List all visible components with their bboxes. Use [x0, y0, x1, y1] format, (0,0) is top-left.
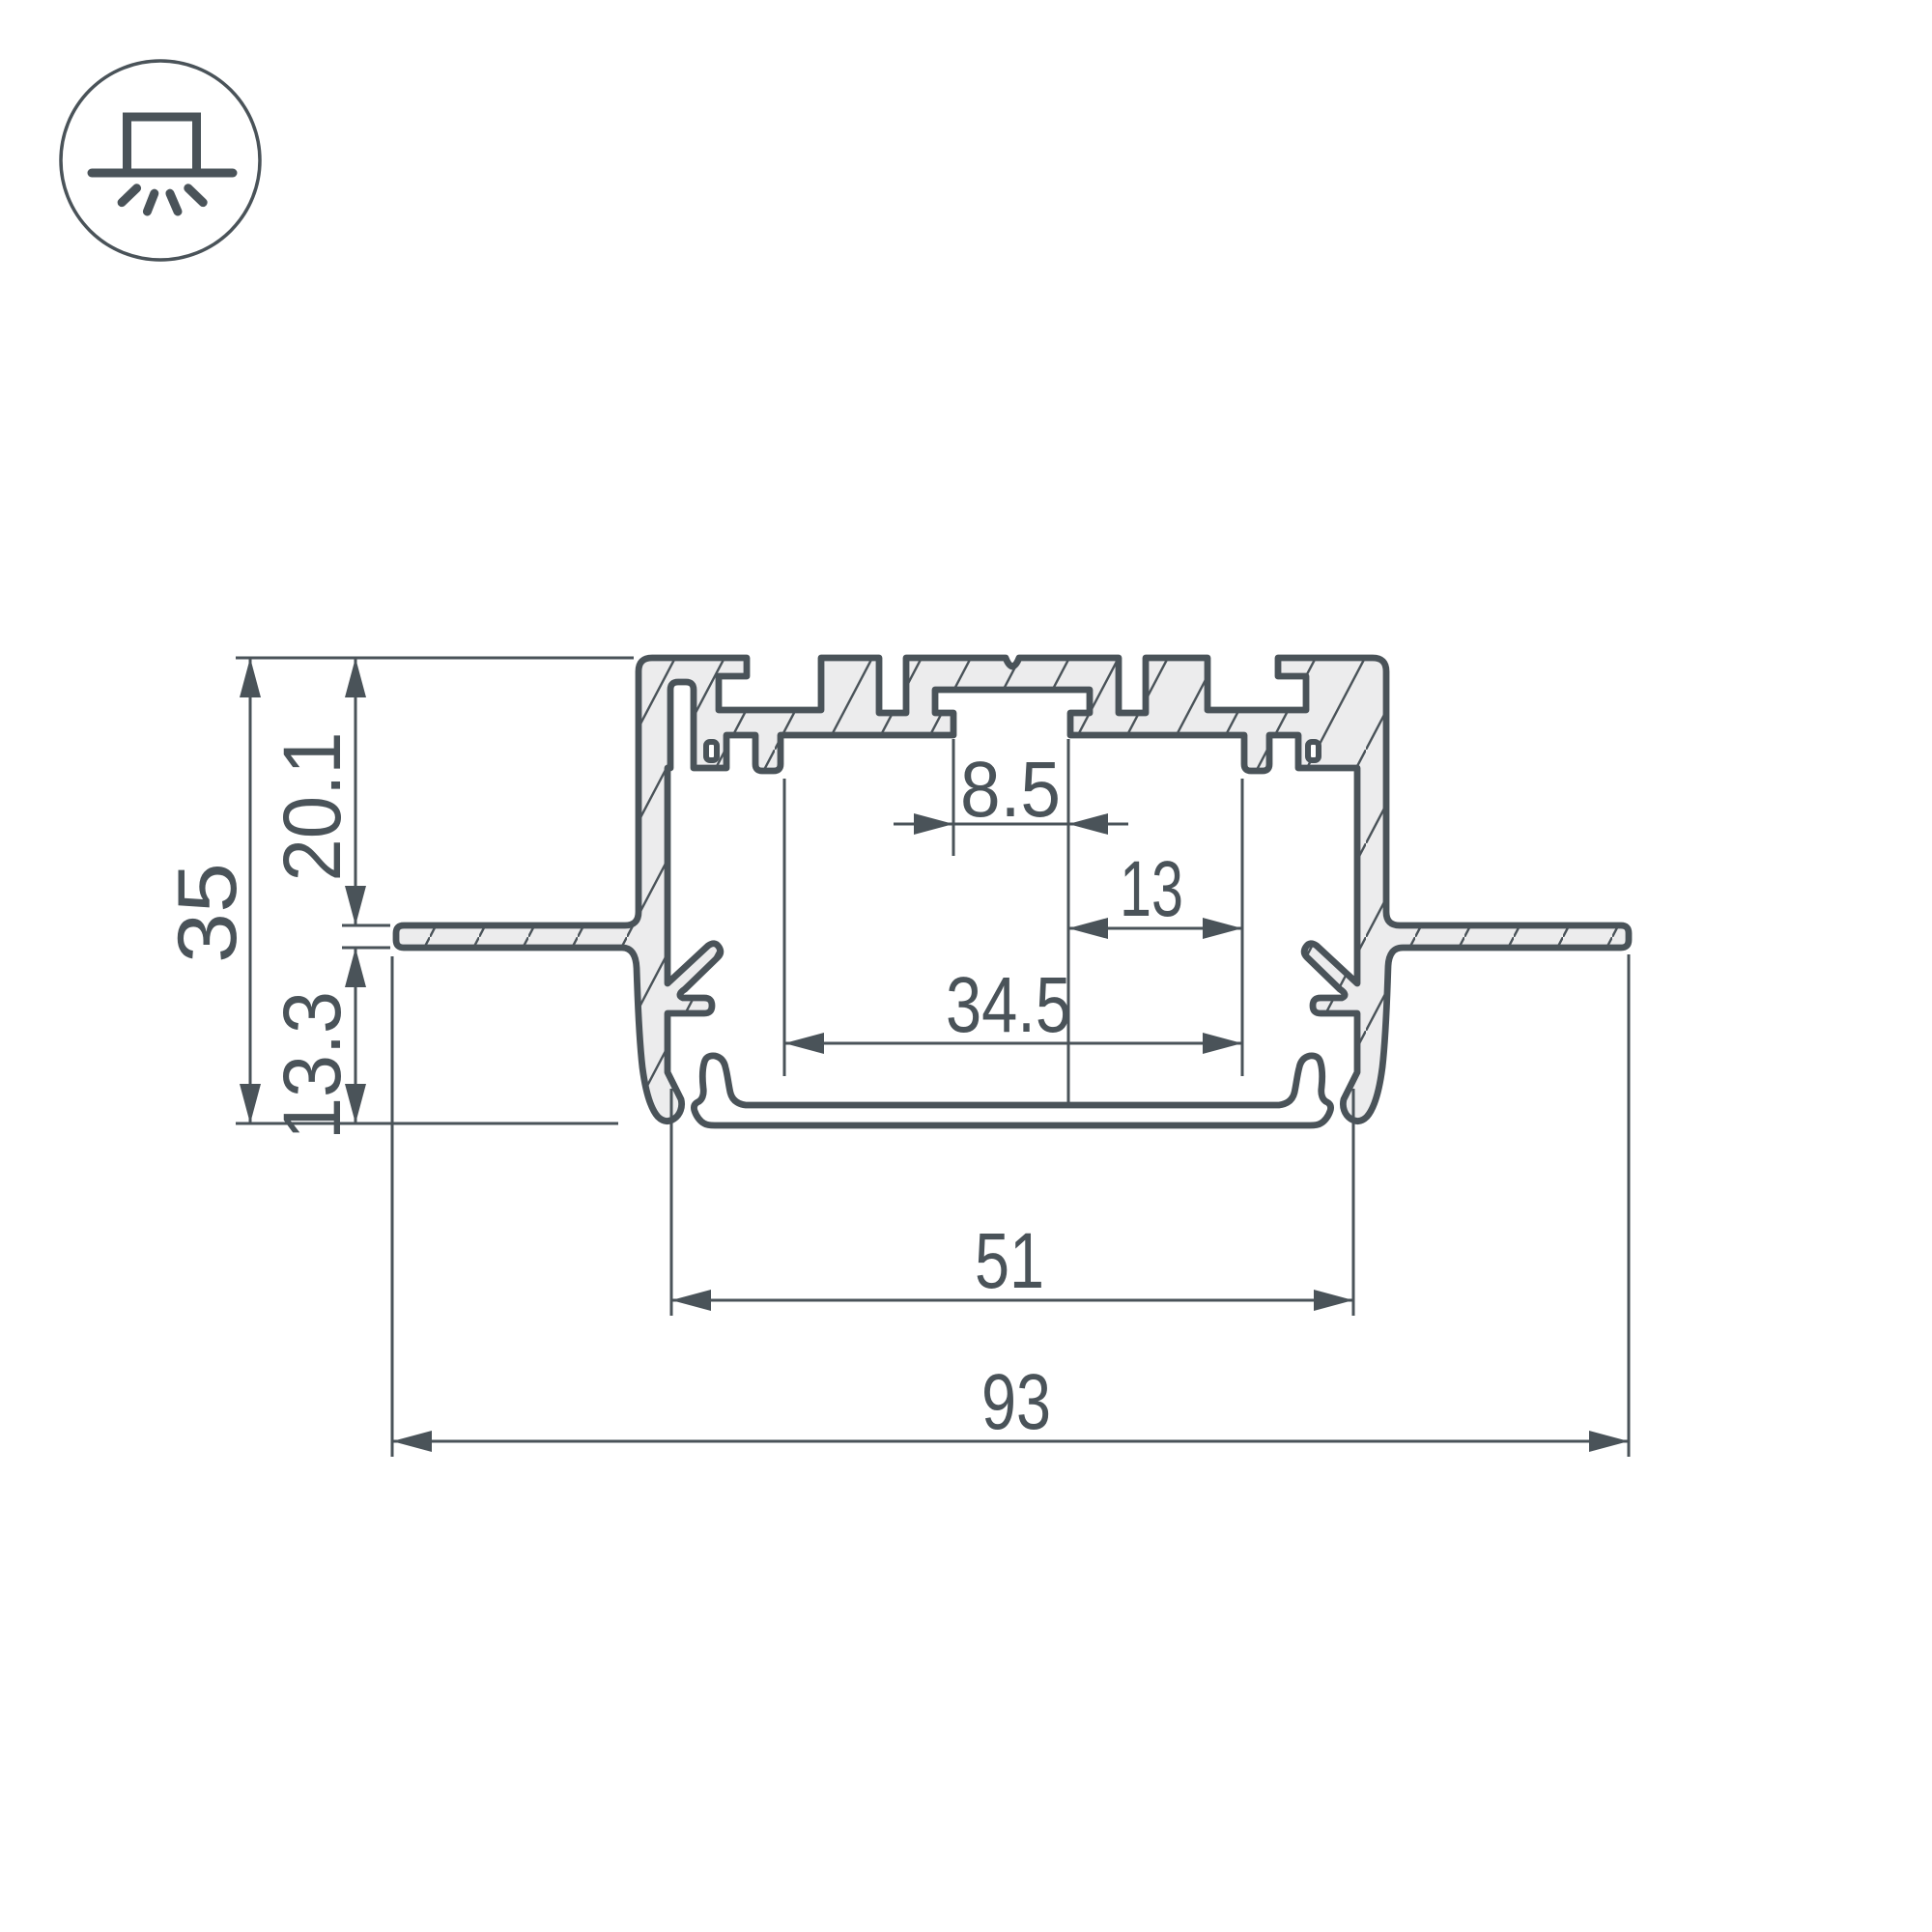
svg-text:13.3: 13.3: [267, 991, 357, 1140]
svg-text:35: 35: [161, 863, 254, 963]
svg-text:20.1: 20.1: [267, 732, 357, 882]
svg-text:34.5: 34.5: [946, 961, 1071, 1049]
svg-text:93: 93: [981, 1358, 1051, 1446]
svg-text:13: 13: [1120, 845, 1183, 933]
svg-text:51: 51: [975, 1217, 1044, 1305]
svg-text:8.5: 8.5: [960, 746, 1061, 834]
